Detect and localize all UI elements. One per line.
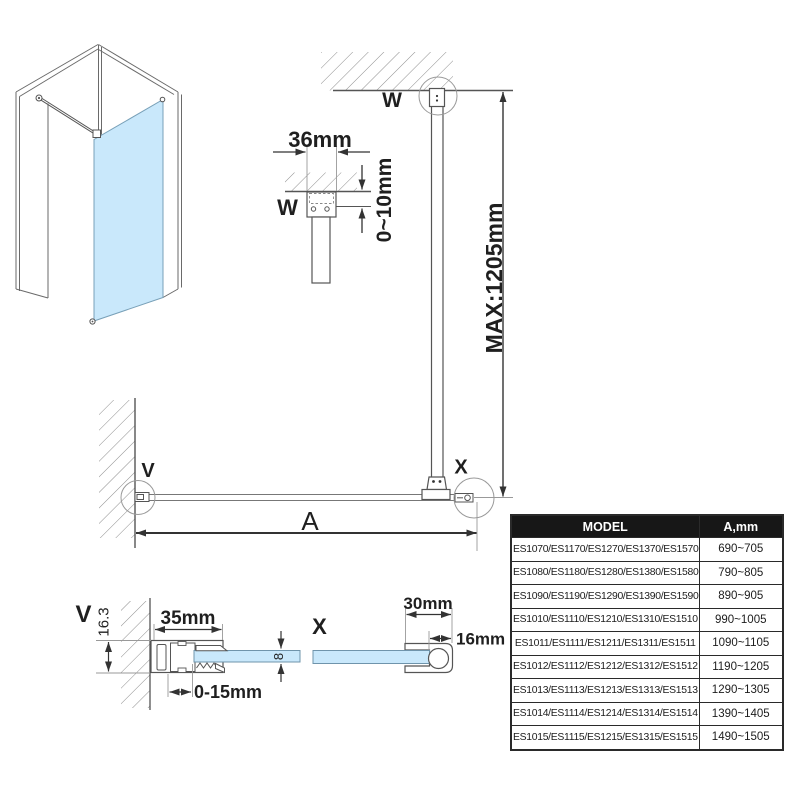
wall-edge [16, 289, 48, 298]
wall-edge [20, 49, 99, 97]
size-cell: 1290~1305 [699, 679, 783, 703]
model-table: MODEL A,mm ES1070/ES1170/ES1270/ES1370/E… [510, 514, 784, 751]
wall-edge [163, 289, 178, 298]
glass-section [313, 651, 430, 664]
table-row: ES1010/ES1110/ES1210/ES1310/ES1510 990~1… [511, 608, 783, 632]
table-row: ES1090/ES1190/ES1290/ES1390/ES1590 890~9… [511, 585, 783, 609]
glass-section [149, 495, 455, 501]
table-row: ES1070/ES1170/ES1270/ES1370/ES1570 690~7… [511, 538, 783, 562]
detail-v-label: V [75, 601, 91, 628]
dim-label-8mm: 8 [271, 653, 286, 660]
model-cell: ES1010/ES1110/ES1210/ES1310/ES1510 [511, 608, 699, 632]
table-row: ES1013/ES1113/ES1213/ES1313/ES1513 1290~… [511, 679, 783, 703]
dim-label-30mm: 30mm [403, 594, 452, 613]
callout-label-w: W [382, 89, 402, 112]
dim-label-max: MAX:1205mm [481, 203, 507, 354]
model-cell: ES1012/ES1112/ES1212/ES1312/ES1512 [511, 655, 699, 679]
callout-label-v: V [141, 460, 155, 482]
size-cell: 1090~1105 [699, 632, 783, 656]
size-cell: 690~705 [699, 538, 783, 562]
table-row: ES1011/ES1111/ES1211/ES1311/ES1511 1090~… [511, 632, 783, 656]
table-header-row: MODEL A,mm [511, 515, 783, 538]
detail-x-label: X [312, 614, 327, 639]
support-bar-section [312, 217, 330, 283]
size-cell: 1490~1505 [699, 726, 783, 750]
column-header-model: MODEL [511, 515, 699, 538]
glass-clamp-base [422, 490, 450, 500]
model-cell: ES1013/ES1113/ES1213/ES1313/ES1513 [511, 679, 699, 703]
size-cell: 890~905 [699, 585, 783, 609]
model-cell: ES1011/ES1111/ES1211/ES1311/ES1511 [511, 632, 699, 656]
size-cell: 790~805 [699, 561, 783, 585]
table-row: ES1012/ES1112/ES1212/ES1312/ES1512 1190~… [511, 655, 783, 679]
top-bracket [430, 89, 445, 107]
support-bar-3d [36, 95, 101, 138]
dim-label-35mm: 35mm [161, 608, 216, 629]
ceiling-bracket [307, 192, 336, 217]
wall-bracket-mini [135, 493, 149, 502]
dim-label-0-15: 0-15mm [194, 682, 262, 702]
wall-edge [16, 45, 98, 93]
support-bar [422, 89, 450, 500]
bottom-clamp [427, 477, 447, 490]
detail-x: 30mm 16mm X [312, 594, 505, 673]
dim-label-16mm: 16mm [456, 630, 505, 649]
glass-panel [94, 100, 163, 322]
table-row: ES1014/ES1114/ES1214/ES1314/ES1514 1390~… [511, 702, 783, 726]
size-cell: 1190~1205 [699, 655, 783, 679]
dim-label-36mm: 36mm [288, 127, 352, 152]
model-cell: ES1090/ES1190/ES1290/ES1390/ES1590 [511, 585, 699, 609]
model-cell: ES1014/ES1114/ES1214/ES1314/ES1514 [511, 702, 699, 726]
installation-drawing-sheet: 36mm 0~10mm W [0, 0, 800, 800]
wall-hatch [99, 400, 135, 538]
size-cell: 990~1005 [699, 608, 783, 632]
end-cap-mini [455, 494, 473, 503]
table-row: ES1080/ES1180/ES1280/ES1380/ES1580 790~8… [511, 561, 783, 585]
table-row: ES1015/ES1115/ES1215/ES1315/ES1515 1490~… [511, 726, 783, 750]
callout-label-x: X [454, 457, 468, 479]
dim-label-gap: 0~10mm [373, 158, 396, 243]
ceiling-hatch [321, 52, 453, 91]
detail-w: 36mm 0~10mm W [273, 127, 396, 283]
support-bar-cross-section [429, 649, 449, 669]
overview-3d [16, 45, 182, 325]
dim-label-16-3: 16.3 [96, 607, 113, 636]
column-header-a-mm: A,mm [699, 515, 783, 538]
ceiling-hatch [285, 173, 357, 192]
detail-w-label: W [277, 195, 298, 220]
wall-edge [99, 45, 179, 93]
wall-hatch [121, 601, 150, 708]
wall-edge [99, 50, 175, 95]
model-cell: ES1070/ES1170/ES1270/ES1370/ES1570 [511, 538, 699, 562]
detail-v: 16.3 35mm 8 0-15mm V [75, 598, 300, 710]
glass-wall-fitting [160, 97, 165, 102]
profile-carriage [171, 643, 196, 672]
profile-chamber [157, 645, 166, 671]
model-cell: ES1015/ES1115/ES1215/ES1315/ES1515 [511, 726, 699, 750]
dim-label-a: A [301, 506, 319, 536]
model-cell: ES1080/ES1180/ES1280/ES1380/ES1580 [511, 561, 699, 585]
size-cell: 1390~1405 [699, 702, 783, 726]
